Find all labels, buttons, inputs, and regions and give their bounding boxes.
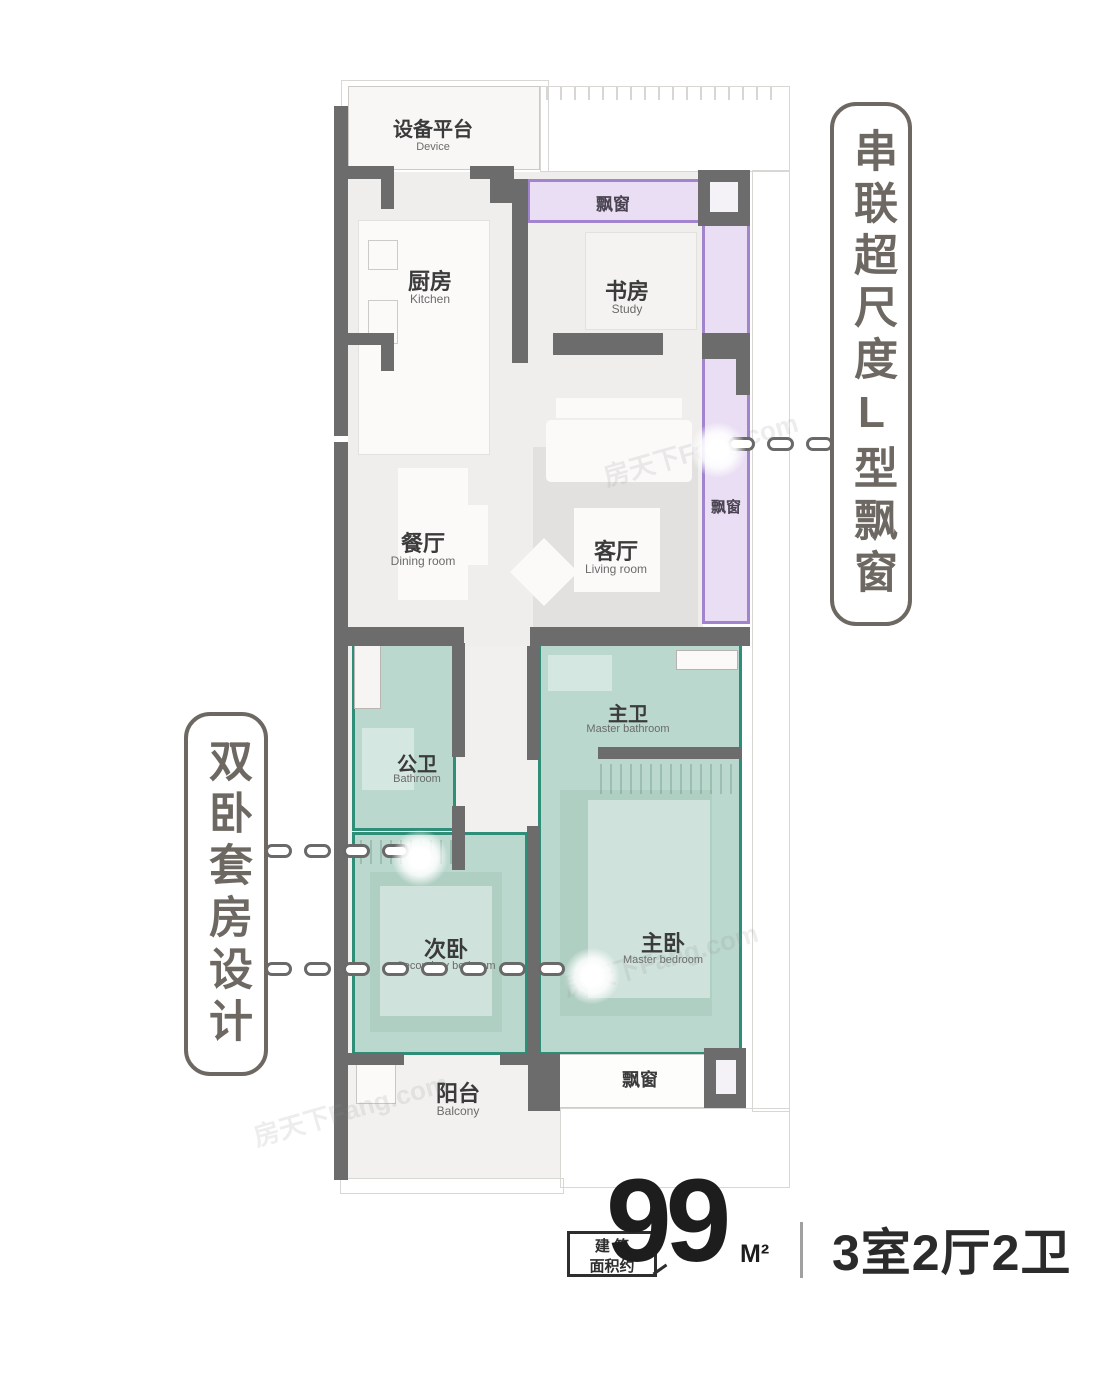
callout-left-text: 双卧套房设计	[204, 738, 248, 1050]
wall-bay-stub	[702, 333, 750, 359]
footer-separator	[800, 1222, 803, 1278]
wall-kitchen-top-jamb	[381, 179, 394, 209]
window-bottom-right	[716, 1060, 736, 1094]
living-label-en: Living room	[585, 562, 647, 576]
wall-kitchen-study	[512, 179, 528, 363]
master-bath-vanity	[548, 655, 612, 691]
master-closet	[676, 650, 738, 670]
wall-kitchen-top-right	[470, 166, 514, 179]
bay-bottom-label: 飘窗	[622, 1066, 658, 1092]
dining-label-en: Dining room	[391, 554, 456, 568]
wall-bay-stub-drop	[736, 359, 750, 395]
dashed-connector-left-2	[265, 962, 565, 976]
dashed-connector-left-1	[265, 844, 409, 858]
sofa-back	[556, 398, 682, 418]
wall-bedroom-divider	[527, 826, 540, 1055]
glow-suite-door	[392, 830, 448, 886]
column-kitchen	[490, 179, 514, 203]
device-label-en: Device	[416, 141, 450, 153]
bay-window-right	[702, 172, 750, 624]
bay-top-label: 飘窗	[596, 190, 630, 215]
area-value: 99	[606, 1162, 725, 1280]
callout-right-text: 串联超尺度L型飘窗	[849, 128, 893, 601]
wall-study-bottom	[553, 333, 663, 355]
wall-mid-left	[348, 627, 464, 646]
outline-balcony-bottom	[340, 1178, 564, 1194]
callout-right: 串联超尺度L型飘窗	[830, 102, 912, 626]
balcony-label-en: Balcony	[437, 1104, 480, 1118]
floorplan-page: 设备平台 Device 飘窗 飘窗 飘窗	[0, 0, 1114, 1400]
wall-left-upper	[334, 106, 348, 436]
outline-right-strip	[752, 170, 790, 1112]
wall-kitchen-top-left	[348, 166, 394, 179]
study-label-en: Study	[612, 302, 643, 316]
wall-suite-left-stub	[527, 646, 540, 760]
wall-mid-right	[530, 627, 750, 646]
bay-right-label: 飘窗	[711, 496, 741, 517]
wall-balcony-corner	[528, 1053, 560, 1111]
wall-balcony-top-left	[348, 1053, 404, 1065]
wall-kitchen-bottom-jamb	[381, 345, 394, 371]
area-unit: M²	[740, 1240, 769, 1269]
glow-master	[564, 948, 620, 1004]
kitchen-label-en: Kitchen	[410, 292, 450, 306]
wall-balcony-top-right	[500, 1053, 530, 1065]
bathroom-duct	[354, 645, 381, 709]
kitchen-sink	[368, 240, 398, 270]
callout-left: 双卧套房设计	[184, 712, 268, 1076]
window-top-right	[710, 182, 738, 212]
wall-corridor-stub	[452, 806, 465, 870]
bath-public-label-en: Bathroom	[393, 773, 441, 785]
bath-master-label-en: Master bathroom	[586, 723, 669, 735]
device-label-cn: 设备平台	[393, 113, 473, 142]
wall-masterbath-divider	[598, 747, 742, 759]
glow-bay	[690, 422, 746, 478]
wall-bath-right	[452, 643, 465, 757]
dining-chair	[466, 505, 488, 565]
wall-kitchen-bottom	[348, 333, 394, 345]
unit-layout: 3室2厅2卫	[832, 1228, 1071, 1278]
